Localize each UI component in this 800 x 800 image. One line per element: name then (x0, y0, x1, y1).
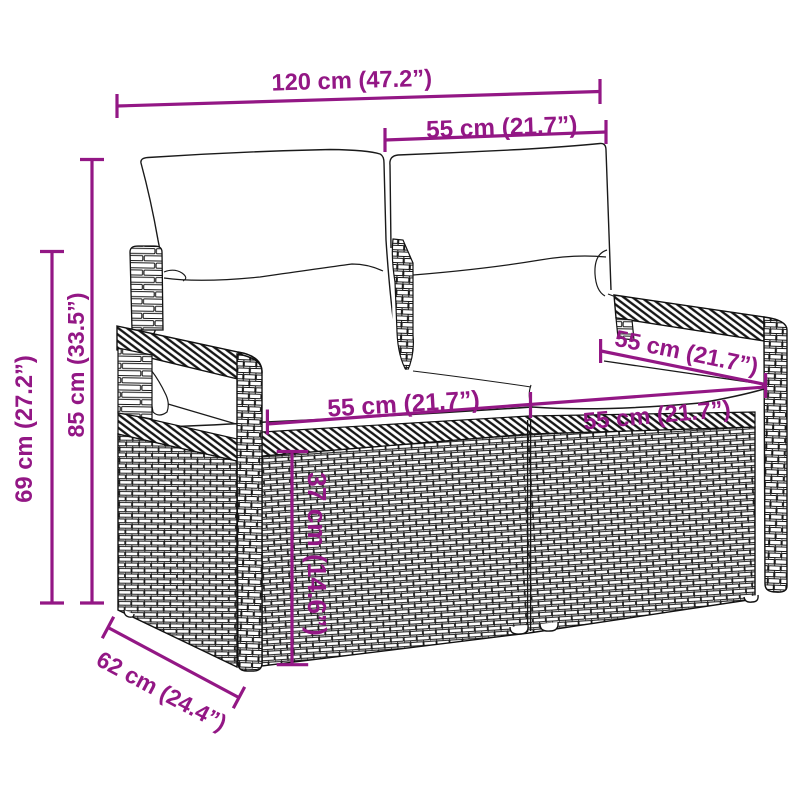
svg-text:55 cm (21.7”): 55 cm (21.7”) (426, 112, 578, 144)
svg-text:69 cm (27.2”): 69 cm (27.2”) (12, 355, 38, 502)
svg-text:120 cm (47.2”): 120 cm (47.2”) (271, 66, 432, 97)
svg-text:37 cm (14.6”): 37 cm (14.6”) (302, 472, 332, 636)
svg-text:85 cm (33.5”): 85 cm (33.5”) (63, 292, 89, 437)
svg-text:62 cm (24.4”): 62 cm (24.4”) (92, 646, 231, 736)
